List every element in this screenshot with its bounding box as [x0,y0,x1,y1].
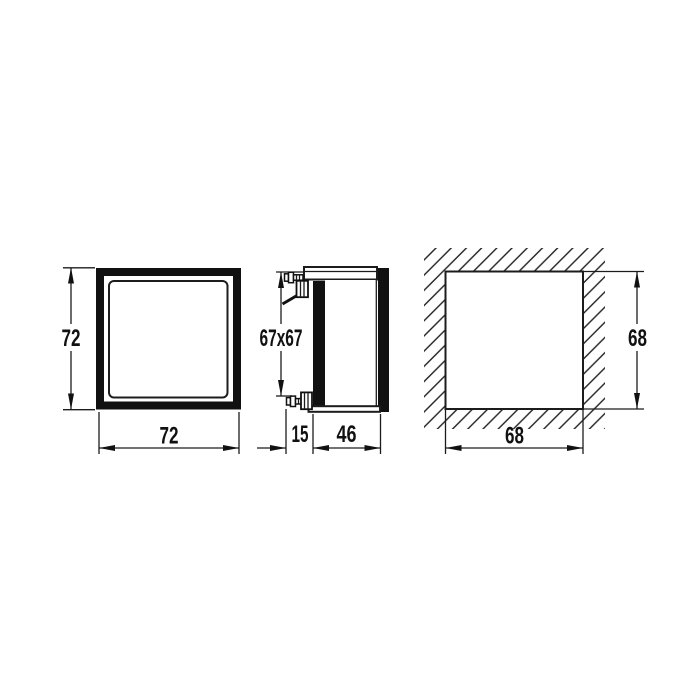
body-depth-label: 46 [337,421,357,448]
case-body [325,280,377,406]
arrowhead-up [278,272,284,288]
panel-cutout [446,272,584,410]
front-bezel-side [378,268,389,412]
arrowhead-down [68,394,74,410]
arrowhead-right [567,445,583,451]
front-view: 72 72 [62,268,240,455]
arrowhead-left [446,445,462,451]
clamp-lever [283,296,298,305]
clamp-rail [313,281,325,410]
cutout-width-label: 68 [505,423,524,450]
side-view: 67x67 15 46 [257,267,389,454]
arrowhead-down [278,380,284,396]
arrowhead-left [313,445,329,451]
body-depth-dimension: 46 [313,414,381,454]
case-top-wall [304,267,377,280]
arrowhead-up [68,268,74,284]
bezel-inner-window [109,281,228,398]
front-depth-dimension: 15 [257,409,313,454]
screw-shaft [294,275,304,280]
clamp-block [297,281,309,297]
side-cutout-label: 67x67 [260,325,303,352]
clamp-block [301,392,312,409]
arrowhead-left [99,445,115,451]
arrowhead-down [634,393,640,409]
arrowhead-up [634,272,640,288]
technical-drawing-canvas: 72 72 [0,0,700,700]
arrowhead-right [223,445,239,451]
arrowhead-right [365,445,381,451]
case-bottom-wall [309,406,381,412]
front-width-dimension: 72 [99,412,239,454]
front-height-label: 72 [62,325,81,352]
cutout-height-label: 68 [628,325,647,352]
arrowhead-right [270,445,286,451]
dimension-drawing: 72 72 [0,0,700,700]
panel-cutout-view: 68 68 [424,248,647,454]
front-width-label: 72 [160,423,179,450]
front-height-dimension: 72 [62,268,96,410]
cutout-height-dimension: 68 [628,272,647,410]
front-depth-label: 15 [292,421,309,448]
